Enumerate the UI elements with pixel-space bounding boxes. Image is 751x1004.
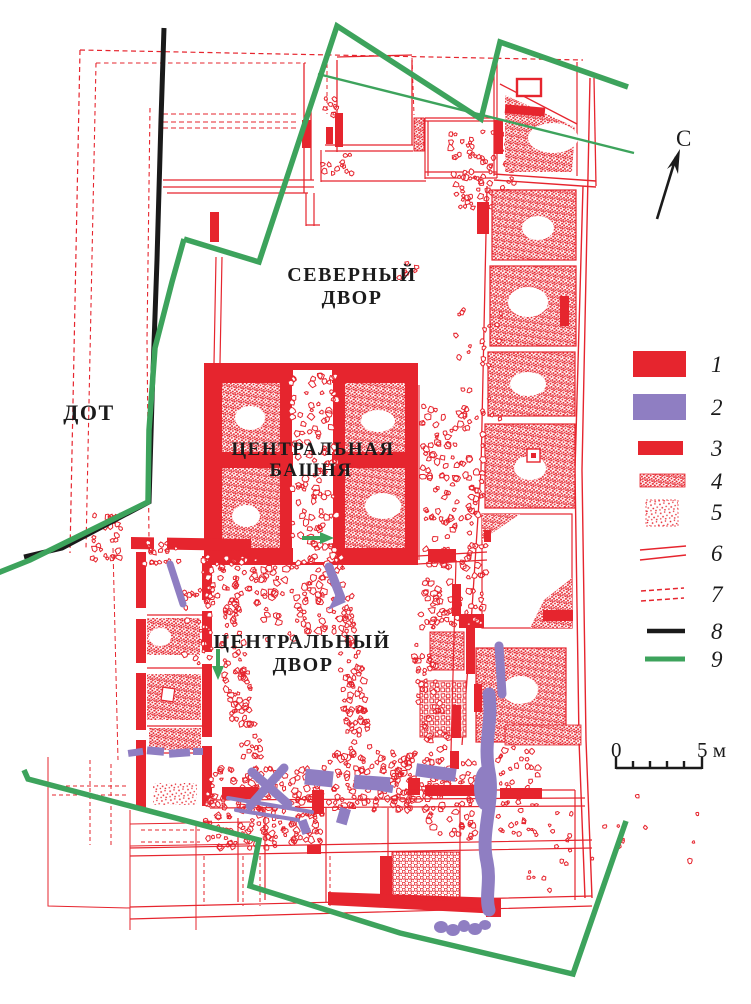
svg-text:7: 7 bbox=[711, 582, 724, 607]
svg-text:ДВОР: ДВОР bbox=[322, 287, 383, 309]
svg-text:3: 3 bbox=[710, 436, 723, 461]
svg-text:5: 5 bbox=[711, 500, 723, 525]
svg-text:БАШНЯ: БАШНЯ bbox=[270, 460, 353, 481]
svg-text:ЦЕНТРАЛЬНЫЙ: ЦЕНТРАЛЬНЫЙ bbox=[213, 630, 390, 653]
svg-text:5 м: 5 м bbox=[697, 738, 726, 762]
svg-text:0: 0 bbox=[611, 738, 622, 762]
svg-text:9: 9 bbox=[711, 647, 723, 672]
svg-text:4: 4 bbox=[711, 469, 723, 494]
svg-text:ЦЕНТРАЛЬНАЯ: ЦЕНТРАЛЬНАЯ bbox=[231, 439, 394, 460]
svg-text:2: 2 bbox=[711, 395, 723, 420]
svg-text:1: 1 bbox=[711, 352, 723, 377]
svg-text:8: 8 bbox=[711, 619, 723, 644]
svg-text:ДОТ: ДОТ bbox=[63, 400, 114, 425]
svg-text:С: С bbox=[676, 126, 691, 151]
svg-text:6: 6 bbox=[711, 541, 723, 566]
svg-text:СЕВЕРНЫЙ: СЕВЕРНЫЙ bbox=[287, 263, 416, 286]
svg-text:ДВОР: ДВОР bbox=[273, 654, 334, 676]
